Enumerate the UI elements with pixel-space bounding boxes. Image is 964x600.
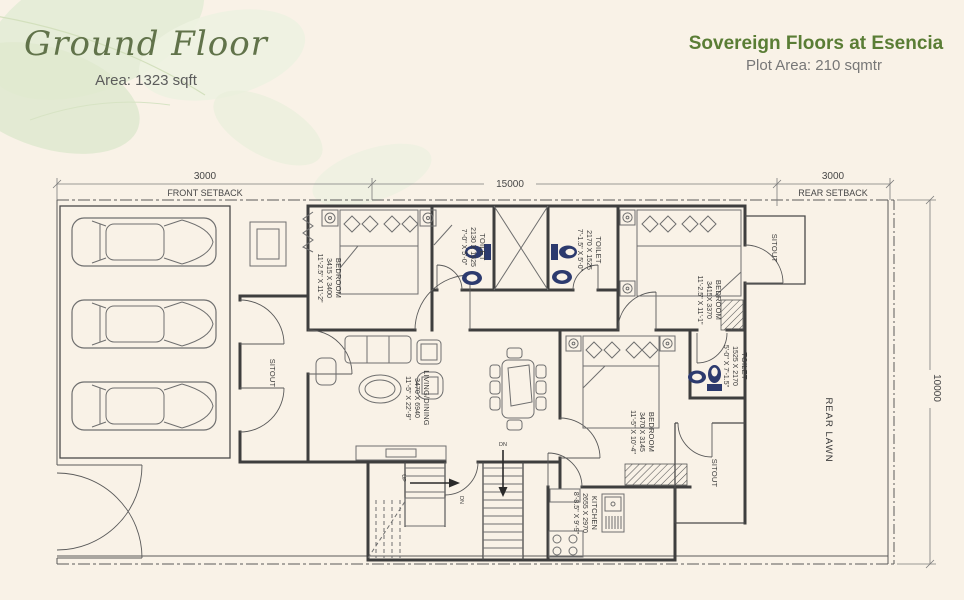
svg-text:11'-2.5" X 11'-1": 11'-2.5" X 11'-1" bbox=[696, 275, 703, 325]
car-3 bbox=[72, 382, 216, 430]
svg-text:2130 X 1525: 2130 X 1525 bbox=[469, 227, 476, 267]
toilet1-door bbox=[437, 265, 462, 290]
svg-text:LIVING/DINING: LIVING/DINING bbox=[422, 370, 431, 426]
sitout-left-door-1 bbox=[240, 300, 284, 344]
sitout-left-label: SITOUT bbox=[268, 359, 277, 388]
sitout-bottom-right-label: SITOUT bbox=[710, 459, 719, 488]
svg-text:3470 X 6940: 3470 X 6940 bbox=[413, 378, 420, 418]
sitout-br-door bbox=[678, 423, 712, 457]
svg-text:BEDROOM: BEDROOM bbox=[334, 258, 343, 298]
svg-text:TOILET: TOILET bbox=[740, 352, 749, 380]
svg-text:KITCHEN: KITCHEN bbox=[590, 496, 599, 530]
svg-text:SITOUT: SITOUT bbox=[710, 459, 719, 488]
svg-text:3415X 3370: 3415X 3370 bbox=[705, 281, 712, 319]
shaft bbox=[494, 206, 548, 290]
svg-text:11'-5" X 22'-9": 11'-5" X 22'-9" bbox=[404, 376, 411, 420]
svg-text:3470 X 3145: 3470 X 3145 bbox=[638, 412, 645, 452]
svg-text:7'-0" X 5'-0": 7'-0" X 5'-0" bbox=[460, 229, 467, 266]
svg-text:TOILET: TOILET bbox=[594, 236, 603, 264]
wardrobe-bedroom3 bbox=[625, 464, 687, 485]
svg-text:7'-1.5" X 5'-0": 7'-1.5" X 5'-0" bbox=[576, 229, 583, 272]
toilet1-label: TOILET 2130 X 1525 7'-0" X 5'-0" bbox=[460, 227, 487, 267]
rear-setback-label: REAR SETBACK bbox=[798, 188, 868, 198]
svg-text:SITOUT: SITOUT bbox=[770, 234, 779, 263]
plot-area: Plot Area: 210 sqmtr bbox=[664, 57, 964, 74]
svg-text:1525 X 2170: 1525 X 2170 bbox=[731, 346, 738, 386]
bedroom1-label: BEDROOM 3415 X 3400 11'-2.5" X 11'-2" bbox=[316, 253, 343, 303]
svg-text:11'-2.5" X 11'-2": 11'-2.5" X 11'-2" bbox=[316, 253, 323, 303]
living-label: LIVING/DINING 3470 X 6940 11'-5" X 22'-9… bbox=[404, 370, 431, 426]
floor-area: Area: 1323 sqft bbox=[24, 72, 268, 89]
svg-text:2655 X 2970: 2655 X 2970 bbox=[581, 493, 588, 533]
bedroom2-door bbox=[618, 292, 656, 330]
dimension-lines: 3000 FRONT SETBACK 15000 3000 REAR SETBA… bbox=[53, 171, 894, 206]
front-setback-label: FRONT SETBACK bbox=[167, 188, 242, 198]
dining-table bbox=[490, 348, 546, 430]
svg-text:SITOUT: SITOUT bbox=[268, 359, 277, 388]
svg-text:BEDROOM: BEDROOM bbox=[714, 280, 723, 320]
svg-text:TOILET: TOILET bbox=[478, 233, 487, 261]
dimension-depth: 10000 bbox=[897, 196, 942, 568]
bedroom3-door bbox=[560, 418, 600, 458]
toilet3-fixtures bbox=[688, 365, 722, 391]
toilet2-label: TOILET 2170 X 1525 7'-1.5" X 5'-0" bbox=[576, 229, 603, 272]
car-2 bbox=[72, 300, 216, 348]
rear-setback-value: 3000 bbox=[822, 171, 845, 182]
stair-dn-label: DN bbox=[499, 442, 507, 448]
svg-text:BEDROOM: BEDROOM bbox=[647, 412, 656, 452]
porch-column bbox=[250, 222, 286, 266]
tv-console bbox=[356, 446, 446, 460]
stair-up-label: UP bbox=[400, 474, 406, 482]
svg-text:3415 X 3400: 3415 X 3400 bbox=[325, 258, 332, 298]
kitchen-label: KITCHEN 2655 X 2970 8'-8.5" X 9'-9" bbox=[572, 492, 599, 535]
svg-text:8'-8.5" X 9'-9": 8'-8.5" X 9'-9" bbox=[572, 492, 579, 535]
svg-text:2170 X 1525: 2170 X 1525 bbox=[585, 230, 592, 270]
floor-plan-page: 3000 FRONT SETBACK 15000 3000 REAR SETBA… bbox=[0, 0, 964, 600]
plot-width-value: 15000 bbox=[496, 179, 524, 190]
front-setback-value: 3000 bbox=[194, 171, 217, 182]
rear-lawn-label: REAR LAWN bbox=[823, 397, 834, 462]
svg-text:5'-0" X 7'-1.5": 5'-0" X 7'-1.5" bbox=[722, 345, 729, 388]
floor-title: Ground Floor bbox=[24, 24, 268, 64]
car-park bbox=[60, 206, 230, 458]
svg-text:11'-5" X 10'-4": 11'-5" X 10'-4" bbox=[629, 410, 636, 454]
svg-text:REAR LAWN: REAR LAWN bbox=[823, 397, 834, 462]
plot-depth-value: 10000 bbox=[931, 374, 942, 402]
sitout-top-right-label: SITOUT bbox=[770, 234, 779, 263]
main-gate bbox=[57, 465, 142, 558]
hall-door bbox=[445, 462, 478, 495]
house-walls bbox=[240, 206, 805, 560]
bedroom1-door bbox=[415, 275, 470, 330]
project-title: Sovereign Floors at Esencia bbox=[666, 33, 964, 55]
wardrobe-bedroom2 bbox=[721, 300, 743, 330]
toilet2-fixtures bbox=[551, 244, 577, 284]
bedroom3-furniture bbox=[566, 336, 687, 485]
bedroom2-label: BEDROOM 3415X 3370 11'-2.5" X 11'-1" bbox=[696, 275, 723, 325]
stair-dn2-label: DN bbox=[458, 496, 464, 504]
car-1 bbox=[72, 218, 216, 266]
sitout-left-door-2 bbox=[240, 388, 284, 432]
bedroom2-furniture bbox=[620, 210, 743, 330]
bedroom3-label: BEDROOM 3470 X 3145 11'-5" X 10'-4" bbox=[629, 410, 656, 454]
